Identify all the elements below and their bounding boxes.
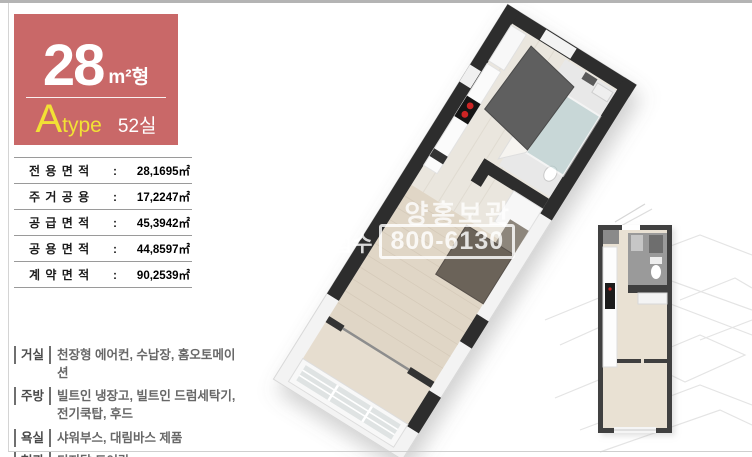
- mini-partition-right: [644, 359, 667, 363]
- table-row: 공 용 면 적 : 44,8597㎡: [14, 235, 192, 261]
- list-item: 욕실 샤워부스, 대림바스 제품: [14, 429, 264, 447]
- area-row-label: 공 용 면 적: [29, 240, 109, 257]
- area-row-value: 45,3942㎡: [121, 215, 192, 231]
- badge-type-row: A type 52실: [14, 99, 178, 139]
- unit-type-badge: 28 m²형 A type 52실: [14, 14, 178, 145]
- area-row-label: 공 급 면 적: [29, 214, 109, 231]
- top-border: [0, 0, 752, 3]
- mini-toilet: [651, 265, 661, 279]
- area-row-value: 90,2539㎡: [121, 267, 192, 283]
- table-row: 계 약 면 적 : 90,2539㎡: [14, 261, 192, 288]
- colon: :: [113, 164, 117, 178]
- colon: :: [113, 216, 117, 230]
- area-row-value: 28,1695㎡: [121, 163, 192, 179]
- mini-partition-left: [617, 359, 641, 363]
- area-row-value: 44,8597㎡: [121, 241, 192, 257]
- badge-area-row: 28 m²형: [14, 14, 178, 92]
- list-item: 현관 디지탈 도어락: [14, 452, 264, 457]
- floorplan-2d-mini: [598, 225, 672, 433]
- mini-closet: [603, 230, 619, 244]
- left-border: [8, 3, 9, 452]
- area-table: 전 용 면 적 : 28,1695㎡ 주 거 공 용 : 17,2247㎡ 공 …: [14, 157, 192, 288]
- table-row: 주 거 공 용 : 17,2247㎡: [14, 183, 192, 209]
- unit-count: 52실: [118, 111, 157, 138]
- type-word: type: [62, 114, 102, 138]
- area-row-value: 17,2247㎡: [121, 189, 192, 205]
- feature-list: 거실 천장형 에어컨, 수납장, 홈오토메이션 주방 빌트인 냉장고, 빌트인 …: [14, 346, 264, 457]
- feature-text: 빌트인 냉장고, 빌트인 드럼세탁기, 전기쿡탑, 후드: [57, 387, 239, 423]
- area-number: 28: [43, 39, 104, 92]
- feature-text: 샤워부스, 대림바스 제품: [57, 429, 239, 447]
- feature-text: 천장형 에어컨, 수납장, 홈오토메이션: [57, 346, 239, 382]
- floorplan-3d: [273, 4, 636, 457]
- table-row: 공 급 면 적 : 45,3942㎡: [14, 209, 192, 235]
- colon: :: [113, 242, 117, 256]
- mini-vanity: [638, 293, 667, 304]
- table-row: 전 용 면 적 : 28,1695㎡: [14, 157, 192, 183]
- area-unit: m²형: [108, 62, 149, 89]
- list-item: 주방 빌트인 냉장고, 빌트인 드럼세탁기, 전기쿡탑, 후드: [14, 387, 264, 423]
- area-row-label: 전 용 면 적: [29, 162, 109, 179]
- flyer-page: 28 m²형 A type 52실 전 용 면 적 : 28,1695㎡ 주 거…: [0, 0, 752, 457]
- area-row-label: 계 약 면 적: [29, 266, 109, 283]
- feature-label: 현관: [14, 452, 51, 457]
- feature-label: 주방: [14, 387, 51, 405]
- area-row-label: 주 거 공 용: [29, 188, 109, 205]
- colon: :: [113, 268, 117, 282]
- mini-cooktop: [605, 283, 615, 309]
- list-item: 거실 천장형 에어컨, 수납장, 홈오토메이션: [14, 346, 264, 382]
- mini-entrance: [622, 225, 640, 230]
- colon: :: [113, 190, 117, 204]
- feature-text: 디지탈 도어락: [57, 452, 239, 457]
- feature-label: 거실: [14, 346, 51, 364]
- type-letter: A: [35, 99, 62, 139]
- feature-label: 욕실: [14, 429, 51, 447]
